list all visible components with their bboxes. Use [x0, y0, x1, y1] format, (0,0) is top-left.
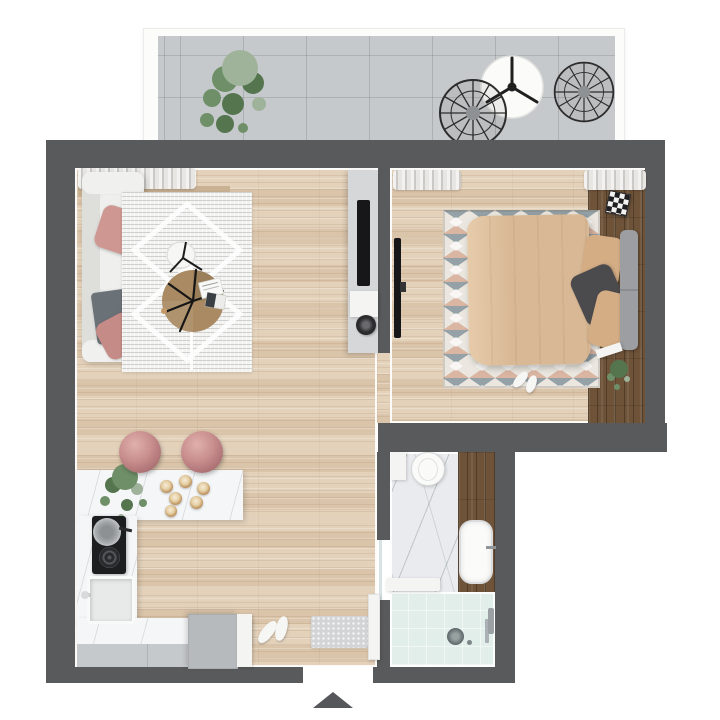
bedroom-curtain	[584, 170, 646, 190]
shower-fixture-icon	[488, 608, 494, 634]
wall-bath-left-upper	[377, 452, 390, 540]
bath-shelf-ledge	[386, 578, 440, 591]
shower-floor	[390, 592, 495, 667]
wall-right	[645, 140, 665, 452]
sofa-armrest	[82, 172, 144, 194]
floor-plan	[0, 0, 720, 720]
pendant-light-icon	[190, 496, 203, 509]
media-box	[350, 291, 378, 317]
glass-panel	[379, 540, 382, 600]
pendant-light-icon	[197, 482, 210, 495]
balcony-plant-icon	[186, 44, 276, 140]
wire-chair-icon	[552, 60, 616, 124]
wire-chair-icon	[437, 77, 509, 149]
bedroom-curtain	[393, 170, 461, 190]
bar-stool	[181, 431, 223, 473]
wall-bottom-left	[46, 667, 303, 683]
washbasin	[459, 520, 493, 584]
toilet	[411, 452, 445, 486]
kitchen-sink	[87, 576, 135, 624]
shower-drain-icon	[447, 628, 464, 645]
burner-icon	[99, 547, 120, 568]
pendant-light-icon	[179, 475, 192, 488]
faucet-icon	[81, 591, 89, 599]
speaker-icon	[356, 315, 376, 335]
cabinet-seam	[147, 644, 148, 667]
bedroom-doorway-floor	[377, 353, 390, 423]
coffee-table-group	[150, 232, 262, 344]
wall-left	[46, 140, 75, 683]
bath-wall-shelf	[391, 452, 406, 480]
bathroom-door-leaf	[368, 594, 380, 660]
bedroom-plant-icon	[598, 352, 636, 394]
toilet-seat	[418, 458, 438, 481]
wall-bottom-right	[373, 667, 515, 683]
pendant-light-icon	[165, 505, 177, 517]
wall-bath-right	[495, 450, 515, 683]
wall-partition	[378, 168, 390, 353]
basin-faucet-icon	[486, 546, 496, 549]
entrance-arrow-icon	[313, 692, 353, 708]
doormat	[311, 616, 368, 648]
entry-step	[237, 614, 252, 667]
wall-top	[46, 140, 665, 168]
pan-icon	[93, 518, 121, 546]
wardrobe	[188, 614, 238, 669]
storage-box-icon	[605, 190, 631, 217]
table-decor-bead	[161, 308, 167, 314]
headboard-seam	[620, 289, 638, 291]
pendant-light-icon	[160, 480, 173, 493]
tv	[357, 200, 370, 286]
wall-bedroom-bottom	[378, 423, 667, 452]
tv-mount	[400, 282, 406, 292]
bar-stool	[119, 431, 161, 473]
pendant-light-icon	[169, 492, 182, 505]
headboard	[620, 230, 638, 350]
